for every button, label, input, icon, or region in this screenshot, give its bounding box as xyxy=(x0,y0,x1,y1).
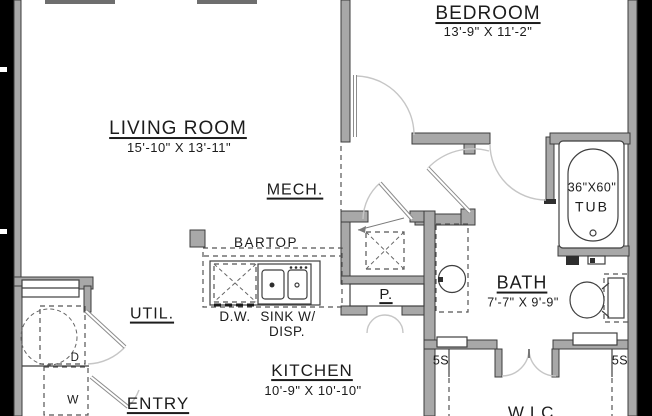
entry-label: ENTRY xyxy=(127,395,189,413)
tub-label: TUB xyxy=(575,200,609,215)
pantry-label: P. xyxy=(379,287,392,303)
tub-size-label: 36"X60" xyxy=(568,181,617,194)
toilet-symbol xyxy=(570,274,628,322)
floor-plan-drawing xyxy=(0,0,652,416)
dryer-label: D xyxy=(71,352,80,364)
bath-dims: 7'-7" X 9'-9" xyxy=(487,296,559,309)
living-room-dims: 15'-10" X 13'-11" xyxy=(127,141,231,155)
shelves-left-label: 5S xyxy=(433,354,449,367)
window-symbol xyxy=(22,280,79,297)
sink-label-line2: DISP. xyxy=(269,325,305,339)
bath-label: BATH xyxy=(497,274,548,293)
outside-black-right xyxy=(637,0,652,416)
wic-double-doors xyxy=(502,349,556,376)
floor-plan: BEDROOM 13'-9" X 11'-2" LIVING ROOM 15'-… xyxy=(0,0,652,416)
sink-label-line1: SINK W/ xyxy=(260,310,315,324)
kitchen-sink-symbol xyxy=(258,264,311,304)
util-label: UTIL. xyxy=(130,307,174,324)
wall-niches xyxy=(437,333,617,347)
mech-label: MECH. xyxy=(267,183,324,200)
outside-black-left xyxy=(0,0,14,416)
water-heater-symbol xyxy=(366,232,404,269)
living-room-label: LIVING ROOM xyxy=(109,119,247,139)
bedroom-label: BEDROOM xyxy=(435,4,540,24)
bedroom-dims: 13'-9" X 11'-2" xyxy=(444,25,533,39)
top-wall-window-segments xyxy=(45,0,257,4)
exterior-walls xyxy=(14,0,637,416)
kitchen-dims: 10'-9" X 10'-10" xyxy=(264,384,361,398)
pantry-double-doors xyxy=(367,315,403,333)
wic-label: W.I.C. xyxy=(508,404,560,416)
bartop-label: BARTOP xyxy=(234,236,298,250)
dishwasher-label: D.W. xyxy=(219,310,250,324)
shelves-right-label: 5S xyxy=(612,354,628,367)
washer-label: W xyxy=(67,394,79,407)
vanity-sink-symbol xyxy=(436,224,468,312)
kitchen-label: KITCHEN xyxy=(271,362,353,380)
